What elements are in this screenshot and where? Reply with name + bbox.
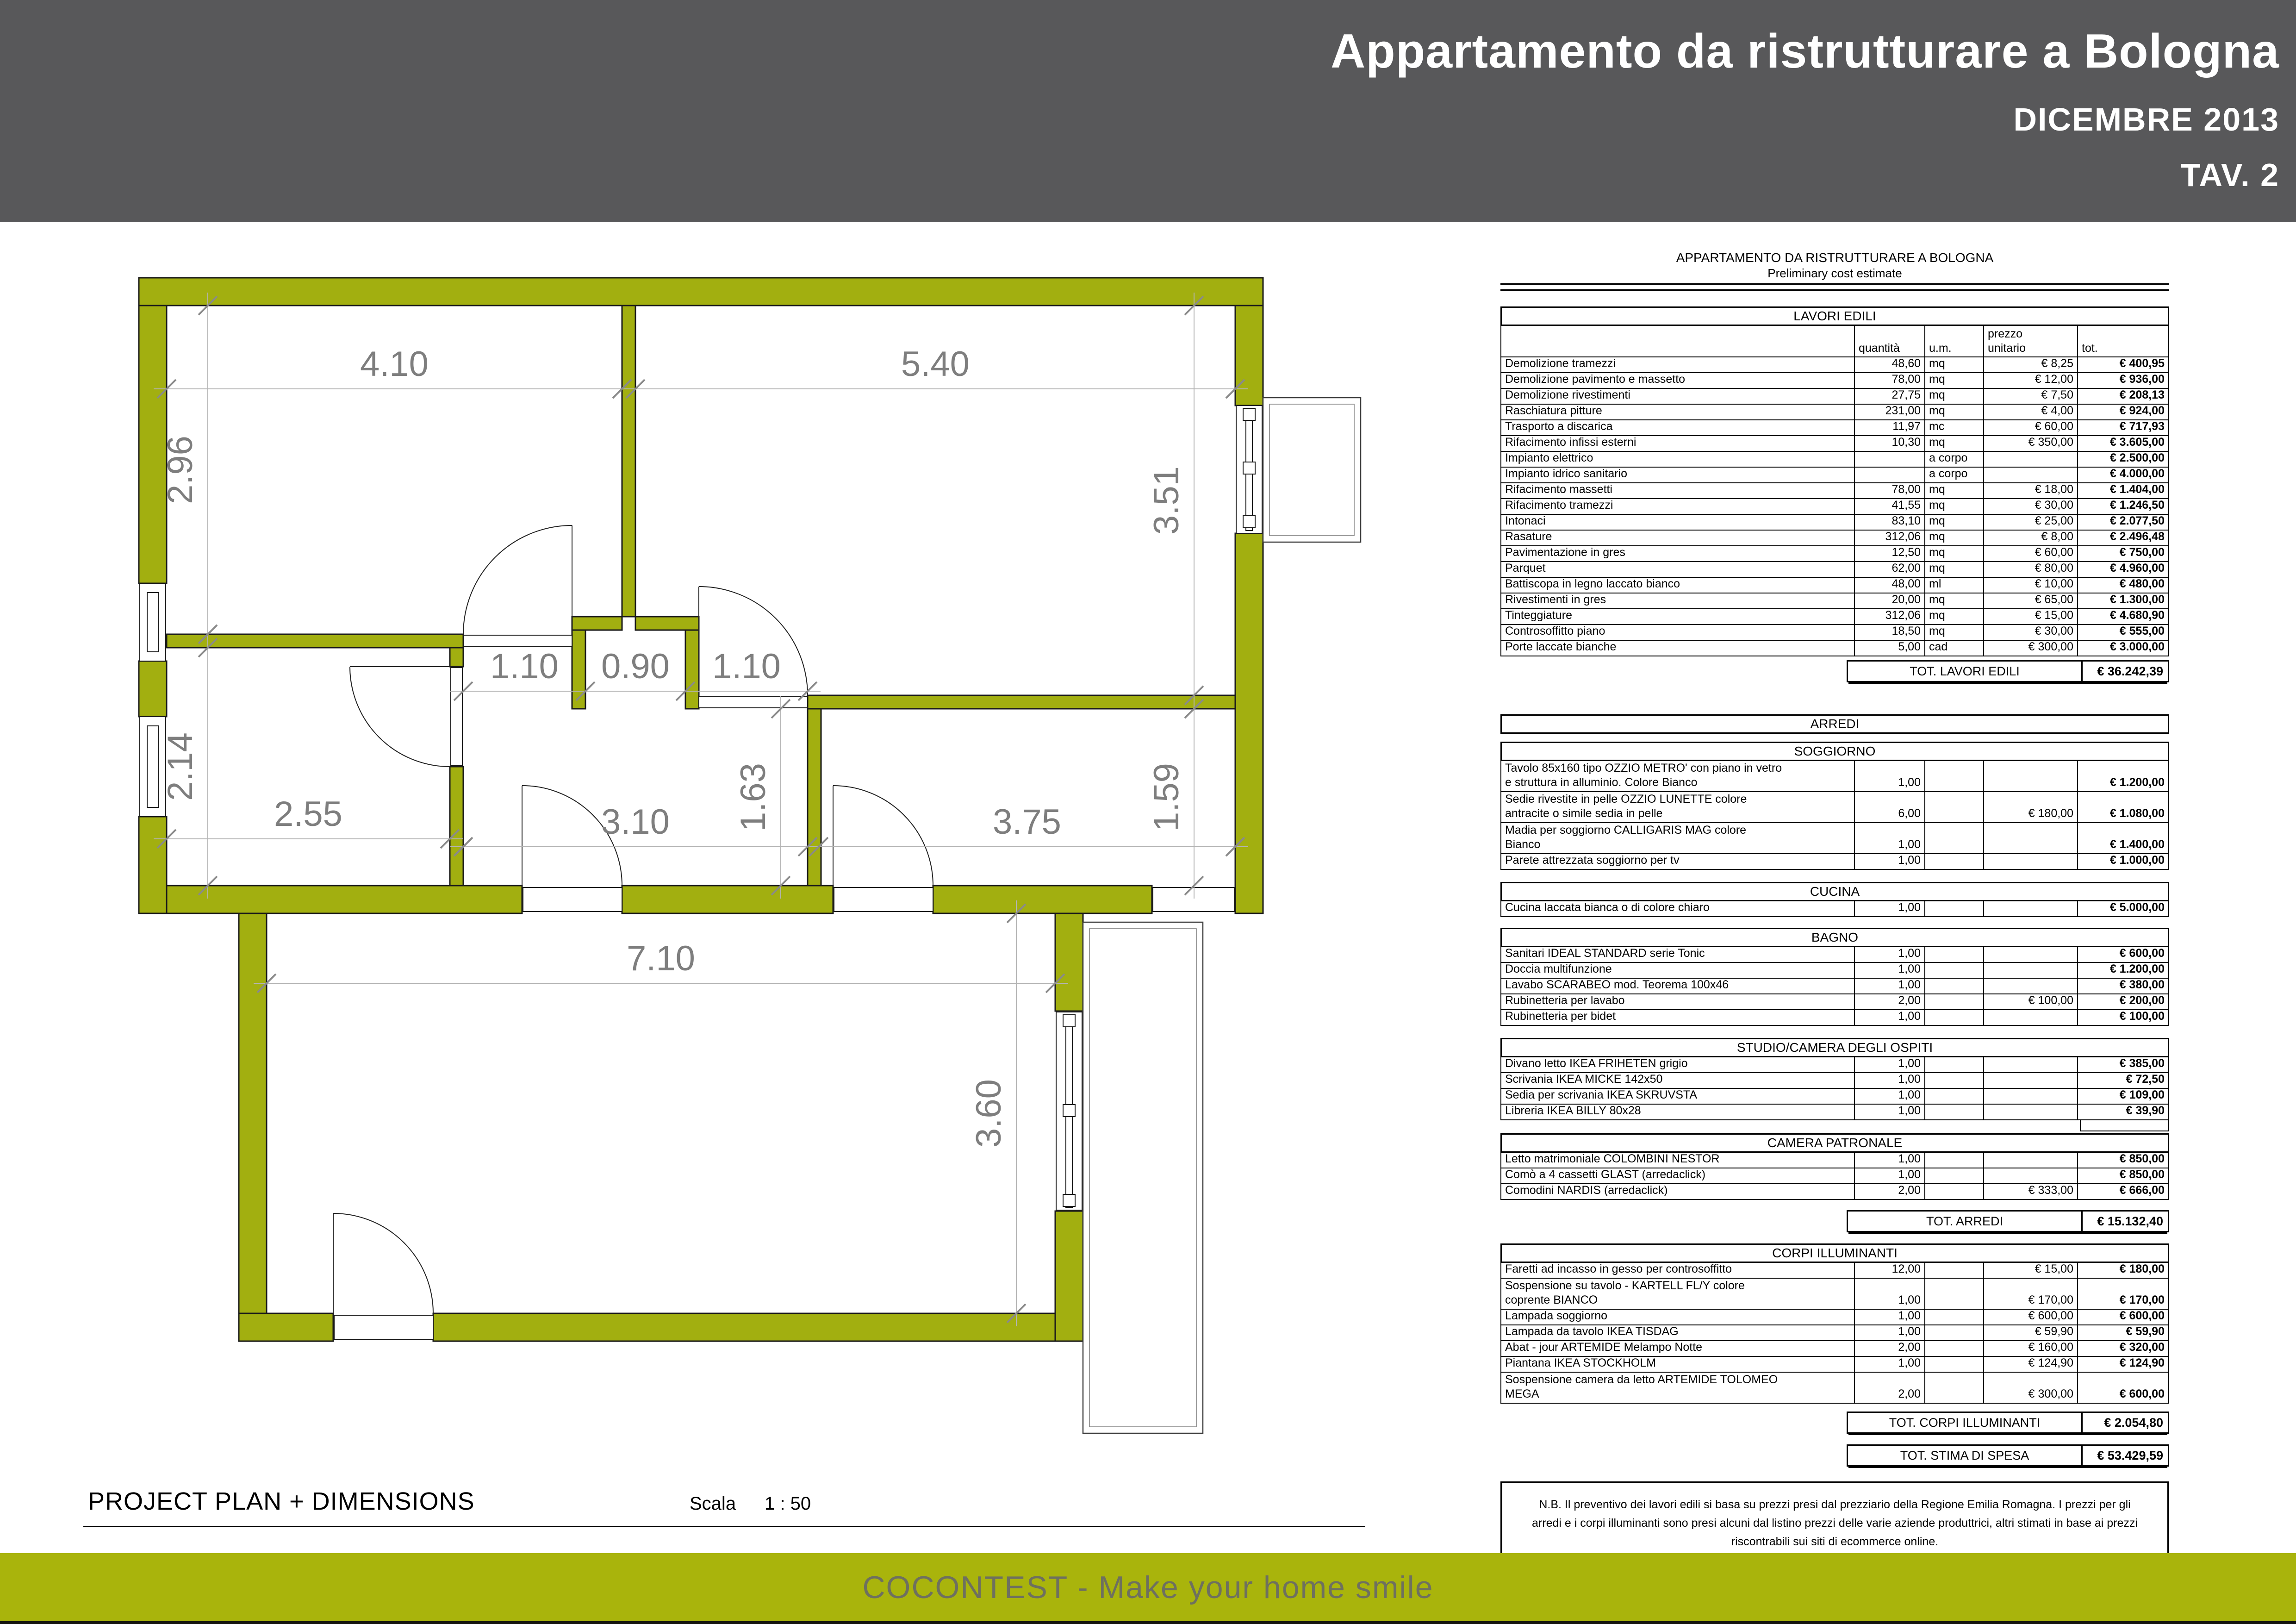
dim-label-710: 7.10 bbox=[627, 939, 695, 978]
dim-label-296: 2.96 bbox=[161, 436, 200, 504]
cell-qty: 1,00 bbox=[1854, 901, 1924, 916]
footer-rule bbox=[83, 1526, 1365, 1527]
cell-unit-price: € 333,00 bbox=[1983, 1184, 2077, 1199]
cell-qty bbox=[1854, 468, 1924, 482]
cell-qty: 1,00 bbox=[1854, 1310, 1924, 1324]
cell-unit-price: € 300,00 bbox=[1983, 641, 2077, 656]
cell-total: € 3.605,00 bbox=[2077, 436, 2168, 451]
cell-total: € 1.246,50 bbox=[2077, 499, 2168, 514]
cell-desc: Lampada soggiorno bbox=[1501, 1310, 1854, 1324]
cell-total: € 600,00 bbox=[2077, 1310, 2168, 1324]
spacer bbox=[1500, 1119, 2080, 1131]
table-row: Raschiatura pitture231,00mq€ 4,00€ 924,0… bbox=[1500, 404, 2169, 420]
cell-unit-price: € 80,00 bbox=[1983, 562, 2077, 577]
cell-total: € 200,00 bbox=[2077, 994, 2168, 1009]
cell-um: mq bbox=[1924, 373, 1983, 388]
cell-total: € 1.200,00 bbox=[2077, 761, 2168, 791]
cell-um: mq bbox=[1924, 499, 1983, 514]
cell-desc: Comò a 4 cassetti GLAST (arredaclick) bbox=[1501, 1168, 1854, 1183]
cell-um: mq bbox=[1924, 389, 1983, 404]
cell-qty: 12,50 bbox=[1854, 546, 1924, 561]
cell-total: € 480,00 bbox=[2077, 578, 2168, 593]
cell-qty: 231,00 bbox=[1854, 405, 1924, 419]
total-value: € 36.242,39 bbox=[2081, 662, 2168, 681]
cell-um: mq bbox=[1924, 609, 1983, 624]
cell-total: € 320,00 bbox=[2077, 1341, 2168, 1356]
cell-desc: Rubinetteria per lavabo bbox=[1501, 994, 1854, 1009]
cell-um: a corpo bbox=[1924, 452, 1983, 467]
section-header: SOGGIORNO bbox=[1500, 742, 2169, 761]
cell-qty: 62,00 bbox=[1854, 562, 1924, 577]
table-row: Tavolo 85x160 tipo OZZIO METRO' con pian… bbox=[1500, 760, 2169, 792]
table-row: Rifacimento infissi esterni10,30mq€ 350,… bbox=[1500, 435, 2169, 452]
cell-qty: 78,00 bbox=[1854, 373, 1924, 388]
cell-um bbox=[1924, 1279, 1983, 1309]
scale-label: Scala bbox=[690, 1493, 736, 1514]
cell-desc: Impianto idrico sanitario bbox=[1501, 468, 1854, 482]
cell-qty: 1,00 bbox=[1854, 1168, 1924, 1183]
cell-um: mq bbox=[1924, 357, 1983, 372]
cell-desc: Controsoffitto piano bbox=[1501, 625, 1854, 640]
cell-total: € 4.000,00 bbox=[2077, 468, 2168, 482]
cell-um bbox=[1924, 1073, 1983, 1088]
table-row: Comodini NARDIS (arredaclick)2,00€ 333,0… bbox=[1500, 1183, 2169, 1200]
cell-um bbox=[1924, 947, 1983, 962]
section-header: CUCINA bbox=[1500, 882, 2169, 901]
cell-um: mq bbox=[1924, 546, 1983, 561]
section-header: BAGNO bbox=[1500, 928, 2169, 947]
cell-unit-price: € 170,00 bbox=[1983, 1279, 2077, 1309]
table-row: Impianto idrico sanitarioa corpo€ 4.000,… bbox=[1500, 467, 2169, 483]
cell-unit-price: € 8,25 bbox=[1983, 357, 2077, 372]
table-row: Sanitari IDEAL STANDARD serie Tonic1,00€… bbox=[1500, 946, 2169, 963]
cell-desc: Demolizione rivestimenti bbox=[1501, 389, 1854, 404]
cell-unit-price: € 8,00 bbox=[1983, 531, 2077, 545]
cell-total: € 170,00 bbox=[2077, 1279, 2168, 1309]
cell-desc: Rasature bbox=[1501, 531, 1854, 545]
cell-unit-price bbox=[1983, 1153, 2077, 1168]
cell-um bbox=[1924, 1373, 1983, 1403]
cell-qty: 1,00 bbox=[1854, 979, 1924, 993]
cell-qty: 78,00 bbox=[1854, 483, 1924, 498]
drawing-sheet: Appartamento da ristrutturare a Bologna … bbox=[0, 0, 2296, 1624]
cell-total: € 1.200,00 bbox=[2077, 963, 2168, 978]
cell-unit-price: € 7,50 bbox=[1983, 389, 2077, 404]
cell-um bbox=[1924, 1057, 1983, 1072]
total-value: € 15.132,40 bbox=[2081, 1212, 2168, 1231]
cell-desc: Libreria IKEA BILLY 80x28 bbox=[1501, 1105, 1854, 1119]
cell-desc: Sedie rivestite in pelle OZZIO LUNETTE c… bbox=[1501, 792, 1854, 822]
cell-um bbox=[1924, 1263, 1983, 1278]
cell-um bbox=[1924, 854, 1983, 869]
cell-desc: Tavolo 85x160 tipo OZZIO METRO' con pian… bbox=[1501, 761, 1854, 791]
table-row: Pavimentazione in gres12,50mq€ 60,00€ 75… bbox=[1500, 545, 2169, 562]
dim-label-214: 2.14 bbox=[161, 732, 200, 801]
cell-qty: 1,00 bbox=[1854, 1325, 1924, 1340]
cell-desc: Piantana IKEA STOCKHOLM bbox=[1501, 1357, 1854, 1372]
cell-desc: Madia per soggiorno CALLIGARIS MAG color… bbox=[1501, 823, 1854, 853]
cell-qty: 12,00 bbox=[1854, 1263, 1924, 1278]
cell-um: mq bbox=[1924, 515, 1983, 530]
cell-qty: 1,00 bbox=[1854, 1057, 1924, 1072]
table-row: Cucina laccata bianca o di colore chiaro… bbox=[1500, 900, 2169, 917]
cell-qty: 27,75 bbox=[1854, 389, 1924, 404]
dim-label-159: 1.59 bbox=[1147, 763, 1186, 831]
cell-unit-price bbox=[1983, 854, 2077, 869]
sheet-number: TAV. 2 bbox=[2181, 156, 2279, 194]
table-row: Letto matrimoniale COLOMBINI NESTOR1,00€… bbox=[1500, 1152, 2169, 1168]
table-row: Trasporto a discarica11,97mc€ 60,00€ 717… bbox=[1500, 419, 2169, 436]
cell-qty: 1,00 bbox=[1854, 1105, 1924, 1119]
cell-um bbox=[1924, 792, 1983, 822]
cell-qty: 41,55 bbox=[1854, 499, 1924, 514]
empty-total-cell bbox=[2080, 1119, 2169, 1131]
cell-um bbox=[1924, 1168, 1983, 1183]
total-label: TOT. LAVORI EDILI bbox=[1848, 662, 2081, 681]
plan-caption: PROJECT PLAN + DIMENSIONS bbox=[88, 1487, 475, 1516]
cell-desc-header bbox=[1501, 326, 1854, 357]
cell-total: € 924,00 bbox=[2077, 405, 2168, 419]
cell-unit-price: € 600,00 bbox=[1983, 1310, 2077, 1324]
cell-qty bbox=[1854, 452, 1924, 467]
cell-qty: 1,00 bbox=[1854, 761, 1924, 791]
cell-unit-price: € 350,00 bbox=[1983, 436, 2077, 451]
cell-total: € 380,00 bbox=[2077, 979, 2168, 993]
cell-um: mq bbox=[1924, 436, 1983, 451]
cell-desc: Comodini NARDIS (arredaclick) bbox=[1501, 1184, 1854, 1199]
cell-desc: Abat - jour ARTEMIDE Melampo Notte bbox=[1501, 1341, 1854, 1356]
cell-unit-price bbox=[1983, 947, 2077, 962]
cell-desc: Rifacimento massetti bbox=[1501, 483, 1854, 498]
cell-total: € 2.496,48 bbox=[2077, 531, 2168, 545]
cell-um bbox=[1924, 761, 1983, 791]
cost-estimate-table: APPARTAMENTO DA RISTRUTTURARE A BOLOGNA … bbox=[1500, 250, 2169, 1565]
cell-qty: 1,00 bbox=[1854, 823, 1924, 853]
cell-total: € 109,00 bbox=[2077, 1089, 2168, 1104]
cell-total: € 555,00 bbox=[2077, 625, 2168, 640]
dim-label-163: 1.63 bbox=[734, 763, 773, 831]
table-row: Rubinetteria per lavabo2,00€ 100,00€ 200… bbox=[1500, 993, 2169, 1010]
cell-unit-price bbox=[1983, 1073, 2077, 1088]
cell-unit-price: € 60,00 bbox=[1983, 546, 2077, 561]
total-box: TOT. LAVORI EDILI€ 36.242,39 bbox=[1847, 660, 2169, 682]
cell-qty: 1,00 bbox=[1854, 1073, 1924, 1088]
cell-price-header: prezzounitario bbox=[1983, 326, 2077, 357]
date-label: DICEMBRE 2013 bbox=[2013, 101, 2279, 138]
cell-qty: 1,00 bbox=[1854, 963, 1924, 978]
cell-desc: Divano letto IKEA FRIHETEN grigio bbox=[1501, 1057, 1854, 1072]
cell-desc: Porte laccate bianche bbox=[1501, 641, 1854, 656]
cell-qty: 5,00 bbox=[1854, 641, 1924, 656]
cell-um bbox=[1924, 1184, 1983, 1199]
table-row: Sospensione su tavolo - KARTELL FL/Y col… bbox=[1500, 1278, 2169, 1310]
cell-total: € 180,00 bbox=[2077, 1263, 2168, 1278]
cell-desc: Lampada da tavolo IKEA TISDAG bbox=[1501, 1325, 1854, 1340]
cell-unit-price bbox=[1983, 1105, 2077, 1119]
table-row: Porte laccate bianche5,00cad€ 300,00€ 3.… bbox=[1500, 640, 2169, 656]
cell-total: € 2.500,00 bbox=[2077, 452, 2168, 467]
cell-unit-price: € 25,00 bbox=[1983, 515, 2077, 530]
table-row: Parete attrezzata soggiorno per tv1,00€ … bbox=[1500, 853, 2169, 870]
cell-um bbox=[1924, 994, 1983, 1009]
cell-um: mq bbox=[1924, 531, 1983, 545]
cell-qty: 18,50 bbox=[1854, 625, 1924, 640]
table-row: Scrivania IKEA MICKE 142x501,00€ 72,50 bbox=[1500, 1072, 2169, 1089]
cell-desc: Raschiatura pitture bbox=[1501, 405, 1854, 419]
cell-desc: Demolizione pavimento e massetto bbox=[1501, 373, 1854, 388]
cell-total: € 1.404,00 bbox=[2077, 483, 2168, 498]
table-row: Rivestimenti in gres20,00mq€ 65,00€ 1.30… bbox=[1500, 593, 2169, 609]
cell-unit-price: € 30,00 bbox=[1983, 499, 2077, 514]
table-row: Parquet62,00mq€ 80,00€ 4.960,00 bbox=[1500, 561, 2169, 578]
cell-total: € 385,00 bbox=[2077, 1057, 2168, 1072]
cell-um bbox=[1924, 1153, 1983, 1168]
section-header: CORPI ILLUMINANTI bbox=[1500, 1243, 2169, 1263]
cell-qty: 20,00 bbox=[1854, 593, 1924, 608]
section-header: CAMERA PATRONALE bbox=[1500, 1133, 2169, 1153]
cell-um: mq bbox=[1924, 593, 1983, 608]
table-row: Doccia multifunzione1,00€ 1.200,00 bbox=[1500, 962, 2169, 979]
cell-unit-price: € 15,00 bbox=[1983, 609, 2077, 624]
cell-desc: Rivestimenti in gres bbox=[1501, 593, 1854, 608]
cell-desc: Parete attrezzata soggiorno per tv bbox=[1501, 854, 1854, 869]
estimate-body: LAVORI EDILIquantitàu.m.prezzounitarioto… bbox=[1500, 306, 2169, 1565]
table-row: Rifacimento massetti78,00mq€ 18,00€ 1.40… bbox=[1500, 482, 2169, 499]
balcony-upper-right bbox=[1263, 398, 1361, 542]
cell-qty: 1,00 bbox=[1854, 1010, 1924, 1025]
total-box: TOT. ARREDI€ 15.132,40 bbox=[1847, 1210, 2169, 1232]
cell-unit-price: € 10,00 bbox=[1983, 578, 2077, 593]
cell-unit-price bbox=[1983, 901, 2077, 916]
cell-desc: Cucina laccata bianca o di colore chiaro bbox=[1501, 901, 1854, 916]
cell-qty: 2,00 bbox=[1854, 994, 1924, 1009]
cell-unit-price bbox=[1983, 452, 2077, 467]
table-row: Tinteggiature312,06mq€ 15,00€ 4.680,90 bbox=[1500, 608, 2169, 625]
dim-label-375: 3.75 bbox=[993, 802, 1061, 842]
table-row: Sospensione camera da letto ARTEMIDE TOL… bbox=[1500, 1372, 2169, 1404]
cell-um bbox=[1924, 1357, 1983, 1372]
cell-total: € 717,93 bbox=[2077, 420, 2168, 435]
cell-unit-price: € 65,00 bbox=[1983, 593, 2077, 608]
cell-desc: Rubinetteria per bidet bbox=[1501, 1010, 1854, 1025]
cell-qty: 1,00 bbox=[1854, 1153, 1924, 1168]
cell-desc: Rifacimento infissi esterni bbox=[1501, 436, 1854, 451]
empty-total-row bbox=[1500, 1119, 2169, 1131]
cell-total: € 600,00 bbox=[2077, 1373, 2168, 1403]
cell-unit-price: € 100,00 bbox=[1983, 994, 2077, 1009]
brand-slogan: COCONTEST - Make your home smile bbox=[862, 1569, 1433, 1605]
cell-total: € 600,00 bbox=[2077, 947, 2168, 962]
cell-um bbox=[1924, 901, 1983, 916]
cell-total: € 72,50 bbox=[2077, 1073, 2168, 1088]
table-row: Rubinetteria per bidet1,00€ 100,00 bbox=[1500, 1009, 2169, 1026]
cell-desc: Parquet bbox=[1501, 562, 1854, 577]
cell-desc: Trasporto a discarica bbox=[1501, 420, 1854, 435]
cell-unit-price bbox=[1983, 468, 2077, 482]
column-header-row: quantitàu.m.prezzounitariotot. bbox=[1500, 325, 2169, 357]
cell-um: mq bbox=[1924, 405, 1983, 419]
table-row: Lavabo SCARABEO mod. Teorema 100x461,00€… bbox=[1500, 978, 2169, 994]
cell-unit-price: € 160,00 bbox=[1983, 1341, 2077, 1356]
dim-label-255: 2.55 bbox=[274, 794, 342, 834]
dim-label-351: 3.51 bbox=[1147, 466, 1186, 535]
cell-desc: Rifacimento tramezzi bbox=[1501, 499, 1854, 514]
table-row: Piantana IKEA STOCKHOLM1,00€ 124,90€ 124… bbox=[1500, 1356, 2169, 1373]
cell-unit-price bbox=[1983, 1010, 2077, 1025]
cell-unit-price: € 12,00 bbox=[1983, 373, 2077, 388]
cell-qty: 6,00 bbox=[1854, 792, 1924, 822]
cell-total: € 3.000,00 bbox=[2077, 641, 2168, 656]
cell-tot-header: tot. bbox=[2077, 326, 2168, 357]
table-row: Sedia per scrivania IKEA SKRUVSTA1,00€ 1… bbox=[1500, 1088, 2169, 1105]
cell-desc: Sanitari IDEAL STANDARD serie Tonic bbox=[1501, 947, 1854, 962]
cell-qty: 2,00 bbox=[1854, 1341, 1924, 1356]
cell-desc: Sospensione su tavolo - KARTELL FL/Y col… bbox=[1501, 1279, 1854, 1309]
table-row: Libreria IKEA BILLY 80x281,00€ 39,90 bbox=[1500, 1104, 2169, 1120]
cell-um: cad bbox=[1924, 641, 1983, 656]
estimate-note: N.B. Il preventivo dei lavori edili si b… bbox=[1500, 1481, 2169, 1565]
cell-qty: 1,00 bbox=[1854, 947, 1924, 962]
cell-unit-price: € 15,00 bbox=[1983, 1263, 2077, 1278]
cell-total: € 1.400,00 bbox=[2077, 823, 2168, 853]
dim-label-310: 3.10 bbox=[601, 802, 670, 842]
cell-um bbox=[1924, 1089, 1983, 1104]
cell-qty: 2,00 bbox=[1854, 1373, 1924, 1403]
cell-total: € 1.080,00 bbox=[2077, 792, 2168, 822]
cell-um bbox=[1924, 1341, 1983, 1356]
dim-label-540: 5.40 bbox=[901, 344, 970, 384]
cell-desc: Impianto elettrico bbox=[1501, 452, 1854, 467]
table-row: Sedie rivestite in pelle OZZIO LUNETTE c… bbox=[1500, 791, 2169, 823]
balcony-lower-right bbox=[1083, 922, 1203, 1433]
table-row: Demolizione pavimento e massetto78,00mq€… bbox=[1500, 372, 2169, 389]
estimate-subtitle: Preliminary cost estimate bbox=[1500, 266, 2169, 281]
cell-qty: 1,00 bbox=[1854, 1279, 1924, 1309]
cell-desc: Tinteggiature bbox=[1501, 609, 1854, 624]
table-row: Demolizione tramezzi48,60mq€ 8,25€ 400,9… bbox=[1500, 356, 2169, 373]
cell-um bbox=[1924, 1105, 1983, 1119]
cell-um bbox=[1924, 979, 1983, 993]
dim-label-410: 4.10 bbox=[360, 344, 429, 384]
cell-qty: 48,60 bbox=[1854, 357, 1924, 372]
cell-unit-price: € 60,00 bbox=[1983, 420, 2077, 435]
cell-total: € 1.300,00 bbox=[2077, 593, 2168, 608]
table-row: Rifacimento tramezzi41,55mq€ 30,00€ 1.24… bbox=[1500, 498, 2169, 515]
cell-um: mc bbox=[1924, 420, 1983, 435]
cell-unit-price: € 30,00 bbox=[1983, 625, 2077, 640]
cell-unit-price bbox=[1983, 963, 2077, 978]
section-header: STUDIO/CAMERA DEGLI OSPITI bbox=[1500, 1038, 2169, 1057]
total-box: TOT. STIMA DI SPESA€ 53.429,59 bbox=[1847, 1444, 2169, 1467]
cell-qty: 312,06 bbox=[1854, 609, 1924, 624]
table-row: Demolizione rivestimenti27,75mq€ 7,50€ 2… bbox=[1500, 388, 2169, 405]
table-row: Battiscopa in legno laccato bianco48,00m… bbox=[1500, 577, 2169, 593]
cell-um: mq bbox=[1924, 483, 1983, 498]
cell-unit-price bbox=[1983, 761, 2077, 791]
cell-total: € 5.000,00 bbox=[2077, 901, 2168, 916]
table-row: Lampada da tavolo IKEA TISDAG1,00€ 59,90… bbox=[1500, 1324, 2169, 1341]
table-row: Faretti ad incasso in gesso per controso… bbox=[1500, 1262, 2169, 1279]
cell-qty: 2,00 bbox=[1854, 1184, 1924, 1199]
cell-desc: Sedia per scrivania IKEA SKRUVSTA bbox=[1501, 1089, 1854, 1104]
table-row: Madia per soggiorno CALLIGARIS MAG color… bbox=[1500, 822, 2169, 854]
double-rule bbox=[1500, 283, 2169, 291]
brand-band: COCONTEST - Make your home smile bbox=[0, 1553, 2296, 1624]
floor-plan: 4.10 5.40 2.96 3.51 2.14 2.55 1.10 0.90 … bbox=[0, 222, 1412, 1472]
table-row: Lampada soggiorno1,00€ 600,00€ 600,00 bbox=[1500, 1309, 2169, 1325]
cell-desc: Lavabo SCARABEO mod. Teorema 100x46 bbox=[1501, 979, 1854, 993]
table-row: Intonaci83,10mq€ 25,00€ 2.077,50 bbox=[1500, 514, 2169, 531]
section-header: ARREDI bbox=[1500, 714, 2169, 734]
dim-label-110b: 1.10 bbox=[712, 647, 781, 686]
total-label: TOT. STIMA DI SPESA bbox=[1848, 1446, 2081, 1465]
cell-qty: 11,97 bbox=[1854, 420, 1924, 435]
cell-um bbox=[1924, 963, 1983, 978]
cell-total: € 2.077,50 bbox=[2077, 515, 2168, 530]
scale-value: 1 : 50 bbox=[765, 1493, 811, 1514]
cell-total: € 850,00 bbox=[2077, 1153, 2168, 1168]
cell-qty: 10,30 bbox=[1854, 436, 1924, 451]
title-block: Appartamento da ristrutturare a Bologna … bbox=[0, 0, 2296, 222]
cell-um: mq bbox=[1924, 562, 1983, 577]
cell-um: mq bbox=[1924, 625, 1983, 640]
cell-desc: Doccia multifunzione bbox=[1501, 963, 1854, 978]
page-title: Appartamento da ristrutturare a Bologna bbox=[1331, 24, 2279, 79]
total-label: TOT. CORPI ILLUMINANTI bbox=[1848, 1413, 2081, 1432]
cell-total: € 39,90 bbox=[2077, 1105, 2168, 1119]
cell-desc: Demolizione tramezzi bbox=[1501, 357, 1854, 372]
cell-qty: 1,00 bbox=[1854, 854, 1924, 869]
cell-um bbox=[1924, 1010, 1983, 1025]
cell-unit-price bbox=[1983, 1168, 2077, 1183]
cell-desc: Faretti ad incasso in gesso per controso… bbox=[1501, 1263, 1854, 1278]
cell-total: € 4.960,00 bbox=[2077, 562, 2168, 577]
cell-qty-header: quantità bbox=[1854, 326, 1924, 357]
estimate-title: APPARTAMENTO DA RISTRUTTURARE A BOLOGNA bbox=[1500, 250, 2169, 266]
total-value: € 53.429,59 bbox=[2081, 1446, 2168, 1465]
cell-um: a corpo bbox=[1924, 468, 1983, 482]
cell-desc: Letto matrimoniale COLOMBINI NESTOR bbox=[1501, 1153, 1854, 1168]
cell-total: € 59,90 bbox=[2077, 1325, 2168, 1340]
cell-total: € 1.000,00 bbox=[2077, 854, 2168, 869]
cell-total: € 850,00 bbox=[2077, 1168, 2168, 1183]
cell-um bbox=[1924, 1325, 1983, 1340]
cell-desc: Intonaci bbox=[1501, 515, 1854, 530]
cell-unit-price bbox=[1983, 823, 2077, 853]
cell-um-header: u.m. bbox=[1924, 326, 1983, 357]
cell-unit-price bbox=[1983, 979, 2077, 993]
dimension-labels: 4.10 5.40 2.96 3.51 2.14 2.55 1.10 0.90 … bbox=[161, 344, 1186, 1148]
cell-unit-price: € 300,00 bbox=[1983, 1373, 2077, 1403]
cell-unit-price: € 59,90 bbox=[1983, 1325, 2077, 1340]
cell-desc: Sospensione camera da letto ARTEMIDE TOL… bbox=[1501, 1373, 1854, 1403]
cell-desc: Battiscopa in legno laccato bianco bbox=[1501, 578, 1854, 593]
cell-qty: 83,10 bbox=[1854, 515, 1924, 530]
cell-unit-price bbox=[1983, 1089, 2077, 1104]
cell-total: € 666,00 bbox=[2077, 1184, 2168, 1199]
table-row: Abat - jour ARTEMIDE Melampo Notte2,00€ … bbox=[1500, 1340, 2169, 1357]
cell-qty: 1,00 bbox=[1854, 1357, 1924, 1372]
dim-label-090: 0.90 bbox=[601, 647, 670, 686]
total-label: TOT. ARREDI bbox=[1848, 1212, 2081, 1231]
table-row: Divano letto IKEA FRIHETEN grigio1,00€ 3… bbox=[1500, 1056, 2169, 1073]
cell-um bbox=[1924, 823, 1983, 853]
dim-label-360: 3.60 bbox=[969, 1079, 1008, 1148]
cell-unit-price: € 124,90 bbox=[1983, 1357, 2077, 1372]
cell-unit-price bbox=[1983, 1057, 2077, 1072]
table-row: Impianto elettricoa corpo€ 2.500,00 bbox=[1500, 451, 2169, 468]
cell-total: € 4.680,90 bbox=[2077, 609, 2168, 624]
